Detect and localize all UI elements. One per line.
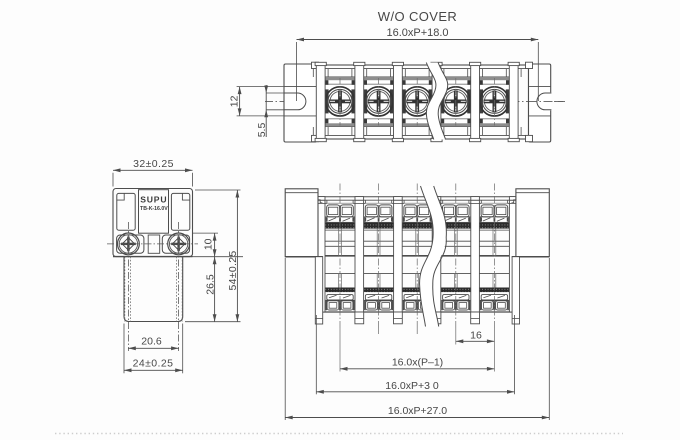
- svg-text:12: 12: [228, 95, 240, 107]
- svg-text:W/O COVER: W/O COVER: [378, 9, 457, 24]
- svg-text:26.5: 26.5: [204, 274, 216, 295]
- svg-text:54±0.25: 54±0.25: [227, 251, 239, 291]
- svg-text:10: 10: [203, 238, 215, 250]
- svg-text:24±0.25: 24±0.25: [133, 358, 174, 370]
- svg-text:16: 16: [470, 329, 482, 341]
- svg-text:20.6: 20.6: [141, 336, 162, 348]
- svg-text:5.5: 5.5: [256, 123, 268, 138]
- svg-text:32±0.25: 32±0.25: [133, 158, 174, 170]
- svg-text:16.0xP+27.0: 16.0xP+27.0: [388, 405, 447, 417]
- svg-text:16.0xP+18.0: 16.0xP+18.0: [386, 27, 448, 39]
- svg-text:16.0x(P–1): 16.0x(P–1): [392, 356, 443, 368]
- svg-text:TB-K-16.0V: TB-K-16.0V: [140, 206, 168, 212]
- svg-text:16.0xP+3 0: 16.0xP+3 0: [385, 380, 439, 392]
- svg-text:SUPU: SUPU: [140, 194, 167, 204]
